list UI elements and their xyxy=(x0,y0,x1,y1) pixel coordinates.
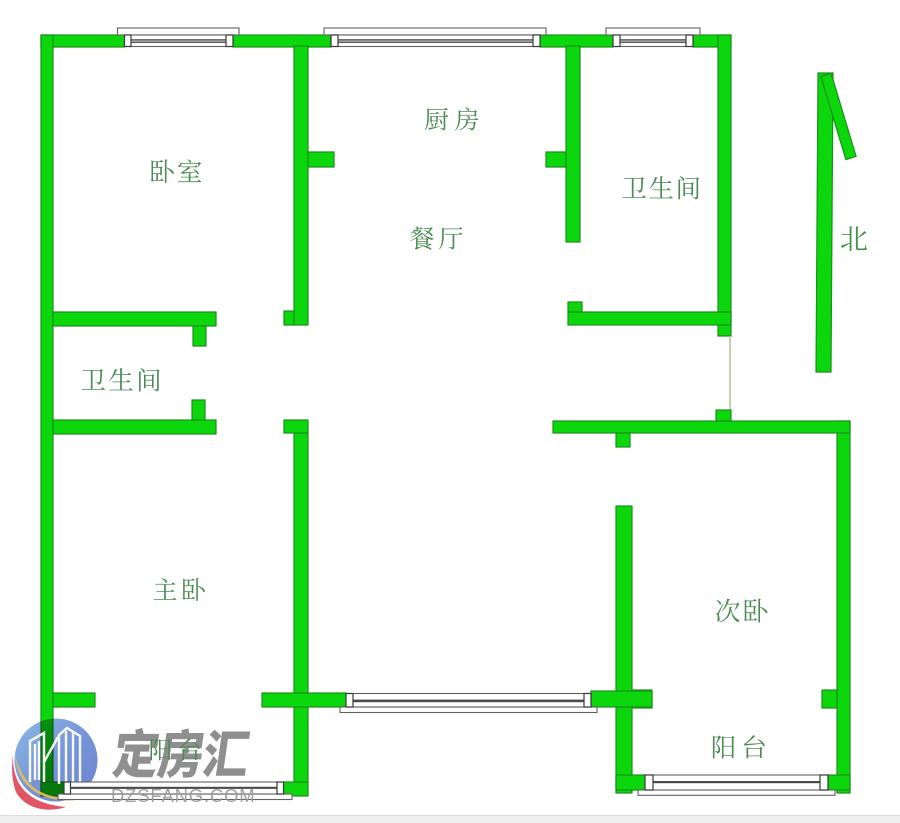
svg-text:DZSFANG.COM: DZSFANG.COM xyxy=(111,785,255,806)
